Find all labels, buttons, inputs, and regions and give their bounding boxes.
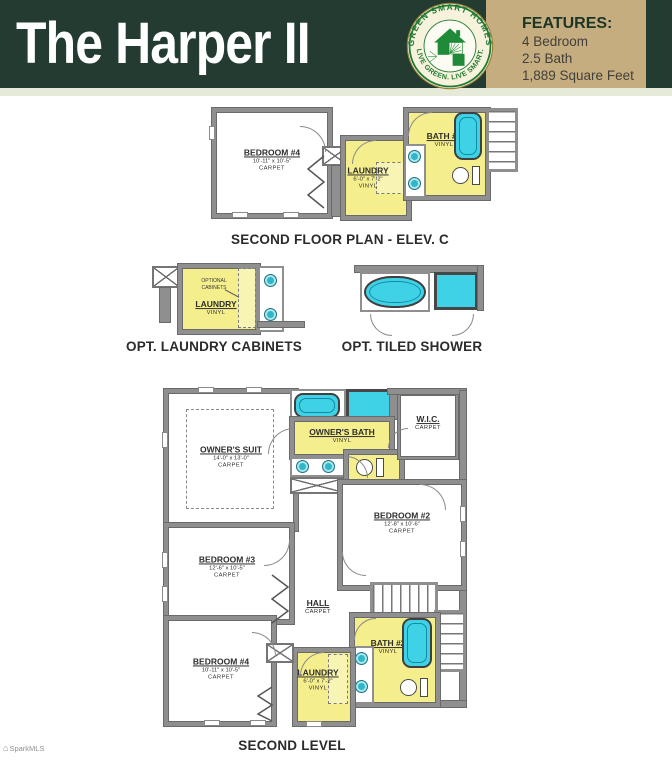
page-title: The Harper II [16, 4, 310, 84]
watermark-house-icon: ⌂ [3, 744, 8, 753]
sl-owners-bath-label: OWNER'S BATH VINYL [309, 427, 375, 445]
sl-bedroom2-label: BEDROOM #2 12'-8" x 10'-6" CARPET [374, 510, 430, 535]
window-mark [283, 212, 299, 218]
sl-bath2-label: BATH #2 VINYL [371, 638, 406, 656]
feature-bedrooms: 4 Bedroom [522, 33, 646, 50]
sl-top-right-wall [388, 389, 466, 394]
watermark-text: SparkMLS [9, 744, 44, 753]
sl-hall-closet-doors-icon [270, 574, 290, 624]
window-mark [460, 506, 466, 522]
optlaundry-closet-icon [152, 266, 180, 288]
sl-right-wall-upper [460, 391, 466, 483]
second-level-caption: SECOND LEVEL [238, 738, 345, 753]
sl-bath2-sink-icon-2 [355, 680, 368, 693]
sl-bath2-tub-icon [402, 618, 432, 668]
window-mark [162, 552, 168, 568]
sl-owners-sink-icon-1 [296, 460, 309, 473]
sl-bath2-sink-icon-1 [355, 652, 368, 665]
features-heading: FEATURES: [522, 15, 646, 33]
optshower-door-arc-2 [452, 314, 474, 336]
elevc-toilet-icon [452, 166, 480, 185]
optshower-door-arc-1 [370, 314, 392, 336]
optlaundry-sink-icon-1 [264, 274, 277, 287]
elevc-stairs [486, 108, 518, 172]
optlaundry-sink-icon-2 [264, 308, 277, 321]
sl-bedroom3-label: BEDROOM #3 12'-6" x 10'-5" CARPET [199, 554, 255, 579]
elevc-closet-doors-icon [306, 154, 326, 210]
window-mark [250, 720, 266, 726]
optshower-shower-icon [434, 272, 478, 310]
listing-flyer: The Harper II FEATURES: 4 Bedroom 2.5 Ba… [0, 0, 672, 768]
optshower-caption: OPT. TILED SHOWER [342, 339, 483, 354]
sl-bedroom4-label: BEDROOM #4 10'-11" x 10'-5" CARPET [193, 656, 249, 681]
sl-owners-tub-icon [294, 393, 340, 418]
elevc-caption: SECOND FLOOR PLAN - ELEV. C [231, 232, 449, 247]
window-mark [232, 212, 248, 218]
elevc-bedroom4-label: BEDROOM #4 10'-11" x 10'-5" CARPET [244, 147, 300, 172]
optshower-right-wall [478, 266, 483, 310]
optlaundry-label: LAUNDRY VINYL [195, 299, 236, 317]
window-mark [306, 721, 322, 727]
feature-sqft: 1,889 Square Feet [522, 67, 646, 84]
elevc-laundry-label: LAUNDRY 6'-0" x 7'-2" VINYL [347, 165, 388, 190]
window-mark [204, 720, 220, 726]
watermark: ⌂ SparkMLS [3, 744, 44, 753]
sl-hall-label: HALL CARPET [305, 598, 331, 616]
optlaundry-cabinets [238, 268, 256, 328]
window-mark [198, 387, 214, 393]
sl-bottom-right-wall [436, 701, 466, 707]
optlaundry-wall-2 [258, 322, 304, 327]
elevc-sink-icon-2 [408, 177, 421, 190]
sl-linen-icon [290, 477, 344, 494]
sl-bedroom4-closet-doors-icon [256, 686, 274, 722]
optlaundry-wall [160, 288, 170, 322]
optlaundry-note: OPTIONAL CABINETS [196, 278, 232, 291]
elevc-tub-icon [454, 112, 482, 160]
window-mark [209, 126, 215, 140]
elevc-sink-icon-1 [408, 150, 421, 163]
window-mark [246, 387, 262, 393]
sl-owners-suite-label: OWNER'S SUIT 14'-0" x 13'-0" CARPET [200, 444, 262, 469]
window-mark [460, 541, 466, 557]
window-mark [162, 432, 168, 448]
sl-wic-label: W.I.C. CARPET [415, 414, 441, 432]
feature-baths: 2.5 Bath [522, 50, 646, 67]
header-divider-strip [0, 88, 672, 96]
features-panel: FEATURES: 4 Bedroom 2.5 Bath 1,889 Squar… [486, 0, 646, 88]
optshower-tub-icon [364, 276, 426, 308]
optlaundry-caption: OPT. LAUNDRY CABINETS [126, 339, 302, 354]
sl-owners-sink-icon-2 [322, 460, 335, 473]
window-mark [162, 586, 168, 602]
sl-bath2-toilet-icon [400, 678, 428, 697]
green-smart-homes-logo: GREEN SMART HOMES LIVE GREEN. LIVE SMART… [406, 2, 494, 90]
